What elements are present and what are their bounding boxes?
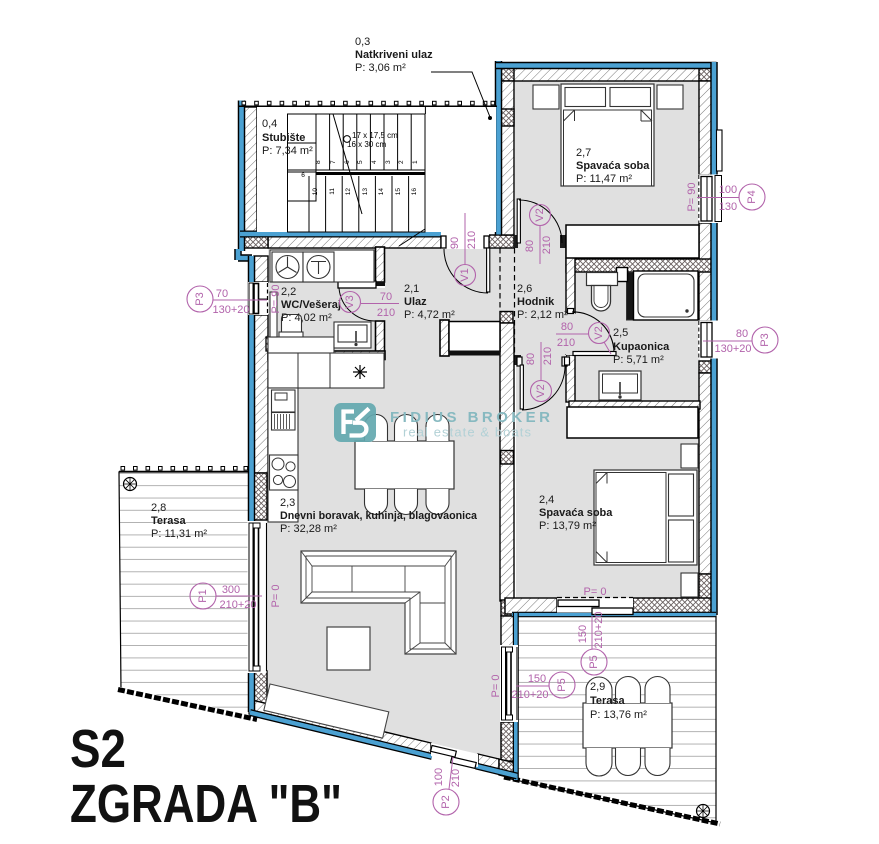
svg-text:80: 80 bbox=[524, 240, 536, 252]
svg-text:100: 100 bbox=[719, 184, 737, 196]
svg-text:V1: V1 bbox=[459, 268, 471, 281]
svg-text:V2: V2 bbox=[535, 384, 547, 397]
svg-text:P5: P5 bbox=[588, 655, 600, 668]
svg-text:210: 210 bbox=[541, 236, 553, 254]
svg-text:P: 13,76 m²: P: 13,76 m² bbox=[590, 709, 647, 721]
svg-text:8: 8 bbox=[315, 160, 322, 164]
svg-text:P: 11,31 m²: P: 11,31 m² bbox=[151, 528, 207, 540]
svg-text:P: 4,72 m²: P: 4,72 m² bbox=[404, 309, 455, 321]
svg-text:P= 90: P= 90 bbox=[270, 284, 282, 313]
svg-text:150: 150 bbox=[577, 625, 589, 643]
svg-text:6: 6 bbox=[301, 172, 305, 179]
svg-text:Spavaća soba: Spavaća soba bbox=[576, 160, 650, 172]
svg-text:2,2: 2,2 bbox=[281, 286, 296, 298]
svg-text:130: 130 bbox=[719, 201, 737, 213]
svg-text:P: 13,79 m²: P: 13,79 m² bbox=[539, 520, 596, 532]
svg-text:2,3: 2,3 bbox=[280, 497, 295, 509]
svg-text:Terasa: Terasa bbox=[151, 515, 187, 527]
svg-text:80: 80 bbox=[561, 321, 573, 333]
svg-text:2,4: 2,4 bbox=[539, 494, 554, 506]
svg-text:13: 13 bbox=[362, 188, 369, 196]
svg-text:real estate & boats: real estate & boats bbox=[403, 425, 532, 440]
svg-text:210: 210 bbox=[377, 307, 395, 319]
svg-text:P3: P3 bbox=[759, 333, 771, 346]
svg-text:0,4: 0,4 bbox=[262, 118, 277, 130]
svg-text:P= 0: P= 0 bbox=[270, 585, 282, 608]
svg-text:210+20: 210+20 bbox=[511, 689, 548, 701]
svg-text:2,7: 2,7 bbox=[576, 147, 591, 159]
svg-text:1: 1 bbox=[412, 160, 419, 164]
svg-text:FIDIUS BROKER: FIDIUS BROKER bbox=[390, 409, 550, 426]
svg-text:4: 4 bbox=[371, 160, 378, 164]
svg-text:P: 32,28 m²: P: 32,28 m² bbox=[280, 523, 337, 535]
svg-text:Natkriveni ulaz: Natkriveni ulaz bbox=[355, 49, 433, 61]
svg-text:ZGRADA "B": ZGRADA "B" bbox=[70, 775, 342, 834]
svg-text:P3: P3 bbox=[194, 292, 206, 305]
svg-text:17 x 17,5 cm: 17 x 17,5 cm bbox=[352, 131, 398, 140]
svg-text:12: 12 bbox=[345, 188, 352, 196]
svg-text:210+20: 210+20 bbox=[593, 611, 605, 648]
svg-text:WC/Vešeraj: WC/Vešeraj bbox=[281, 299, 341, 311]
svg-text:16: 16 bbox=[411, 188, 418, 196]
svg-text:70: 70 bbox=[216, 288, 228, 300]
svg-text:210: 210 bbox=[557, 337, 575, 349]
svg-text:15: 15 bbox=[395, 188, 402, 196]
svg-text:3: 3 bbox=[385, 160, 392, 164]
svg-text:10: 10 bbox=[312, 188, 319, 196]
svg-text:2: 2 bbox=[398, 160, 405, 164]
svg-text:70: 70 bbox=[380, 291, 392, 303]
svg-text:Ulaz: Ulaz bbox=[404, 296, 427, 308]
svg-text:V3: V3 bbox=[344, 295, 356, 308]
svg-text:100: 100 bbox=[433, 768, 445, 786]
svg-text:Spavaća soba: Spavaća soba bbox=[539, 507, 613, 519]
svg-text:S2: S2 bbox=[70, 720, 126, 779]
svg-text:5: 5 bbox=[357, 160, 364, 164]
svg-text:210: 210 bbox=[466, 231, 478, 249]
svg-text:2,6: 2,6 bbox=[517, 283, 532, 295]
svg-text:P: 2,12 m²: P: 2,12 m² bbox=[517, 309, 568, 321]
svg-text:210: 210 bbox=[542, 347, 554, 365]
svg-text:130+20: 130+20 bbox=[212, 304, 249, 316]
svg-text:11: 11 bbox=[329, 188, 336, 195]
svg-text:Hodnik: Hodnik bbox=[517, 296, 555, 308]
svg-text:P: 3,06 m²: P: 3,06 m² bbox=[355, 62, 406, 74]
svg-text:Stubište: Stubište bbox=[262, 132, 305, 144]
svg-text:P= 90: P= 90 bbox=[686, 182, 698, 211]
svg-text:P: 7,34 m²: P: 7,34 m² bbox=[262, 145, 313, 157]
svg-text:7: 7 bbox=[330, 160, 337, 164]
svg-text:Dnevni boravak, kuhinja, blago: Dnevni boravak, kuhinja, blagovaonica bbox=[280, 510, 478, 522]
svg-text:2,5: 2,5 bbox=[613, 327, 628, 339]
svg-text:P1: P1 bbox=[197, 589, 209, 602]
svg-text:V2: V2 bbox=[534, 208, 546, 221]
svg-text:2,1: 2,1 bbox=[404, 283, 419, 295]
svg-text:80: 80 bbox=[736, 328, 748, 340]
svg-text:210+20: 210+20 bbox=[219, 599, 256, 611]
svg-text:Terasa: Terasa bbox=[590, 695, 626, 707]
svg-text:P5: P5 bbox=[556, 678, 568, 691]
svg-text:2,9: 2,9 bbox=[590, 681, 605, 693]
svg-text:P= 0: P= 0 bbox=[584, 586, 607, 598]
svg-text:P2: P2 bbox=[440, 795, 452, 808]
svg-text:210: 210 bbox=[450, 769, 462, 787]
svg-text:P: 5,71 m²: P: 5,71 m² bbox=[613, 354, 664, 366]
svg-text:P4: P4 bbox=[746, 190, 758, 203]
svg-text:V2: V2 bbox=[593, 326, 605, 339]
svg-text:80: 80 bbox=[525, 353, 537, 365]
svg-text:P= 0: P= 0 bbox=[490, 675, 502, 698]
svg-text:90: 90 bbox=[449, 237, 461, 249]
svg-text:P: 4,02 m²: P: 4,02 m² bbox=[281, 312, 332, 324]
svg-text:Kupaonica: Kupaonica bbox=[613, 341, 670, 353]
svg-text:2,8: 2,8 bbox=[151, 502, 166, 514]
svg-text:16 x 30 cm: 16 x 30 cm bbox=[347, 140, 386, 149]
svg-text:6: 6 bbox=[344, 160, 351, 164]
svg-text:0,3: 0,3 bbox=[355, 36, 370, 48]
svg-text:150: 150 bbox=[528, 673, 546, 685]
svg-text:130+20: 130+20 bbox=[714, 343, 751, 355]
svg-text:P: 11,47 m²: P: 11,47 m² bbox=[576, 173, 632, 185]
svg-text:14: 14 bbox=[378, 188, 385, 196]
svg-text:300: 300 bbox=[222, 584, 240, 596]
